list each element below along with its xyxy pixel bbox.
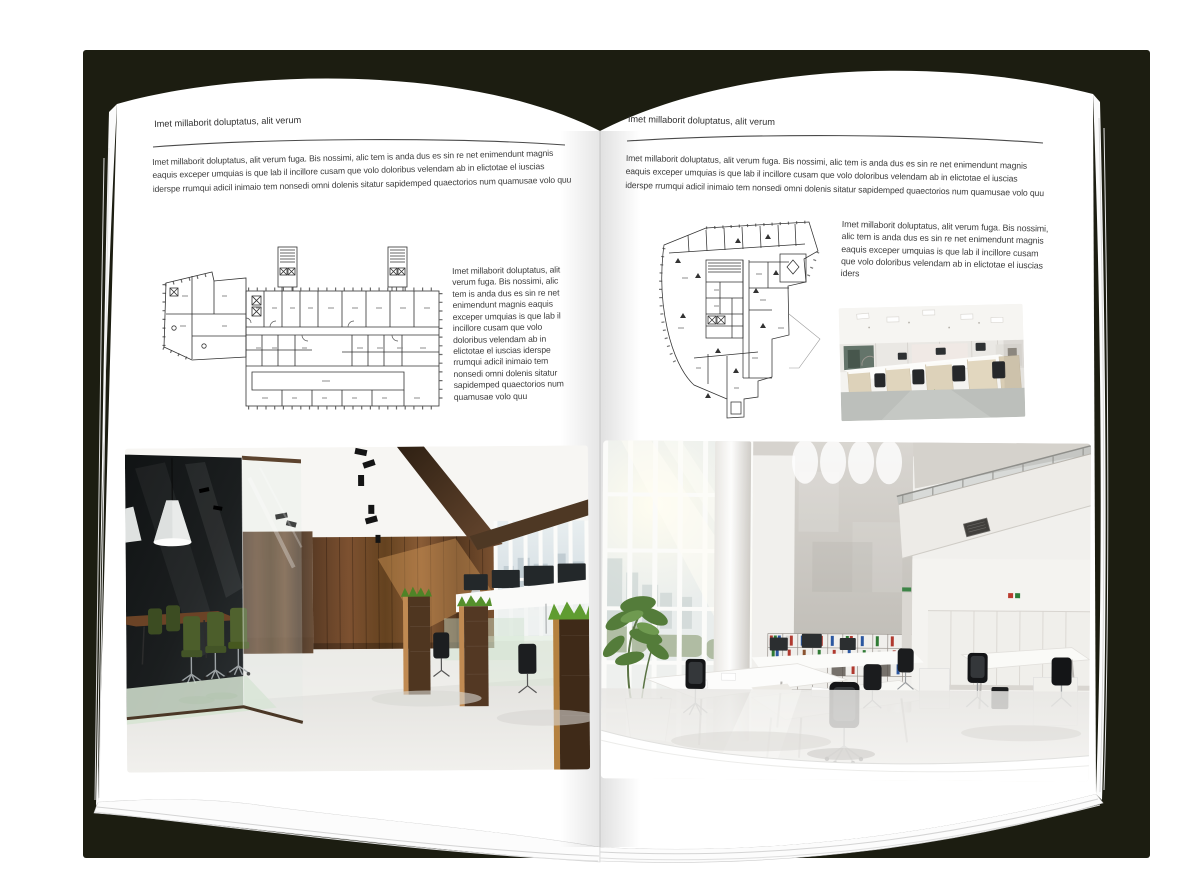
- floor-plan-right-parcel-line: [789, 314, 820, 368]
- right-header-rule: [626, 133, 1044, 147]
- floor-plan-right-window-ticks: [661, 222, 818, 368]
- floor-plan-right: [648, 218, 826, 420]
- small-ceiling: [839, 304, 1024, 344]
- floor-plan-left-window-ticks: [163, 274, 441, 408]
- left-page-side-column: Imet millaborit doluptatus, alit verum f…: [452, 264, 572, 403]
- floor-plan-left-door-arcs: [246, 318, 398, 341]
- floor-plan-right-walls: [662, 222, 818, 418]
- right-page-side-column: Imet millaborit doluptatus, alit verum f…: [841, 218, 1050, 284]
- photo-cubicle-office-small: [839, 304, 1026, 421]
- brochure-mockup-stage: Imet millaborit doluptatus, alit verum I…: [0, 0, 1200, 891]
- floor-plan-left: [152, 226, 446, 414]
- floor-plan-right-dimension-marks: [678, 274, 784, 388]
- fire-sign: [1008, 593, 1013, 598]
- photo-bright-atrium-office: [601, 440, 1091, 781]
- concrete-feature-wall: [791, 440, 913, 634]
- photo-dark-loft-office: [125, 445, 590, 772]
- floor-plan-left-dimension-marks: [180, 296, 430, 398]
- floor-plan-left-walls: [164, 247, 439, 406]
- small-floor: [841, 388, 1026, 421]
- exit-sign: [1015, 593, 1020, 598]
- right-page-intro-paragraph: Imet millaborit doluptatus, alit verum f…: [625, 152, 1046, 200]
